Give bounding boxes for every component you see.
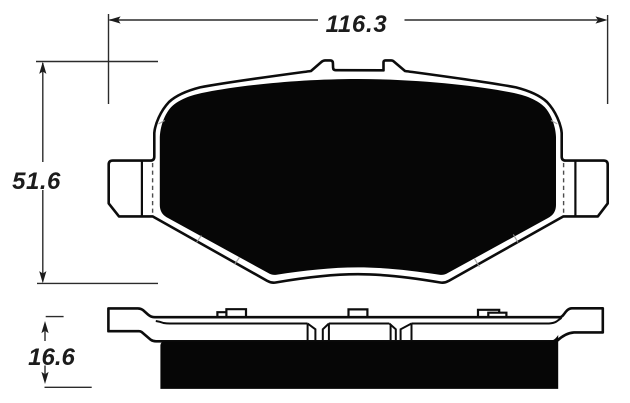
svg-text:51.6: 51.6 — [12, 168, 61, 195]
svg-text:16.6: 16.6 — [28, 344, 75, 371]
svg-text:116.3: 116.3 — [326, 11, 388, 38]
